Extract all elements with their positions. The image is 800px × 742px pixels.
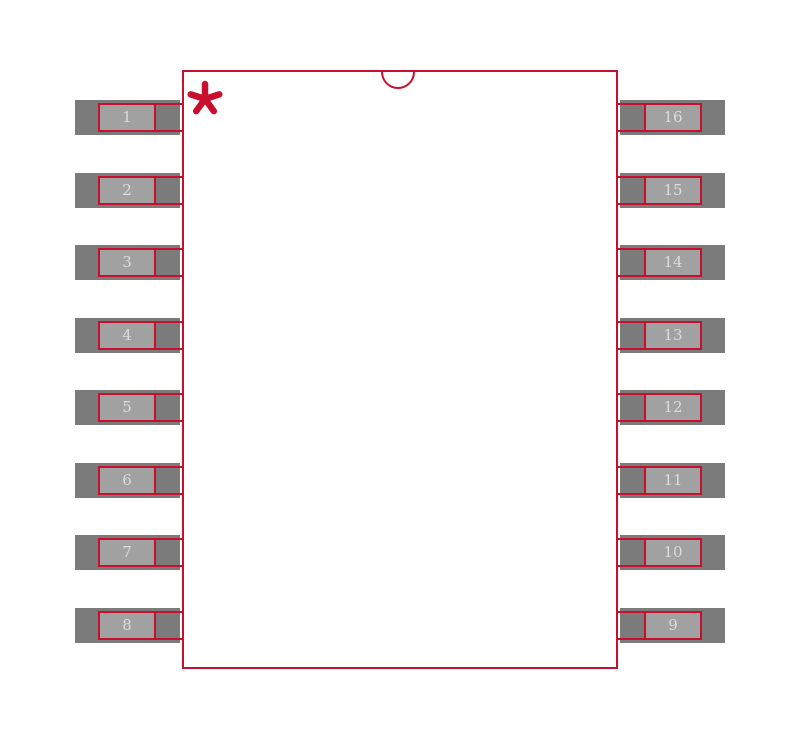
pad-8: 8	[75, 608, 180, 643]
pad-15: 15	[620, 173, 725, 208]
pad-number: 16	[663, 110, 682, 125]
pad-16: 16	[620, 100, 725, 135]
pin-lead-outline	[156, 466, 182, 495]
footprint-canvas: 1 2 3 4 5 6 7	[0, 0, 800, 742]
pin-lead-outline	[618, 248, 644, 277]
pad-13: 13	[620, 318, 725, 353]
pin-foot-outline: 5	[98, 393, 156, 422]
pad-number: 6	[122, 473, 132, 488]
pin-foot-outline: 9	[644, 611, 702, 640]
pad-number: 5	[122, 400, 132, 415]
pad-6: 6	[75, 463, 180, 498]
pin-lead-outline	[156, 611, 182, 640]
pad-12: 12	[620, 390, 725, 425]
pad-5: 5	[75, 390, 180, 425]
pin-lead-outline	[618, 103, 644, 132]
pin-lead-outline	[618, 538, 644, 567]
pin-lead-outline	[156, 248, 182, 277]
pin-lead-outline	[618, 176, 644, 205]
pad-number: 3	[122, 255, 132, 270]
pad-number: 13	[663, 328, 682, 343]
pin-foot-outline: 11	[644, 466, 702, 495]
pad-number: 8	[122, 618, 132, 633]
pad-number: 12	[663, 400, 682, 415]
pad-number: 2	[122, 183, 132, 198]
package-body-outline	[182, 70, 618, 669]
pad-11: 11	[620, 463, 725, 498]
pin-foot-outline: 14	[644, 248, 702, 277]
pad-4: 4	[75, 318, 180, 353]
pin-lead-outline	[156, 103, 182, 132]
pad-number: 1	[122, 110, 132, 125]
pad-number: 14	[663, 255, 682, 270]
pin-foot-outline: 13	[644, 321, 702, 350]
pad-3: 3	[75, 245, 180, 280]
pad-number: 11	[663, 473, 682, 488]
pin-lead-outline	[618, 466, 644, 495]
pad-14: 14	[620, 245, 725, 280]
pin-foot-outline: 7	[98, 538, 156, 567]
orientation-notch-icon	[381, 72, 415, 89]
pin-foot-outline: 4	[98, 321, 156, 350]
pad-9: 9	[620, 608, 725, 643]
pin-lead-outline	[156, 393, 182, 422]
pin-foot-outline: 10	[644, 538, 702, 567]
pin-foot-outline: 2	[98, 176, 156, 205]
pin-foot-outline: 3	[98, 248, 156, 277]
pad-number: 7	[122, 545, 132, 560]
pad-10: 10	[620, 535, 725, 570]
pin-foot-outline: 6	[98, 466, 156, 495]
pad-number: 15	[663, 183, 682, 198]
pin-foot-outline: 1	[98, 103, 156, 132]
pin-lead-outline	[156, 321, 182, 350]
pin-foot-outline: 12	[644, 393, 702, 422]
pad-number: 4	[122, 328, 132, 343]
pin-lead-outline	[618, 611, 644, 640]
pin-foot-outline: 15	[644, 176, 702, 205]
pad-2: 2	[75, 173, 180, 208]
pin1-asterisk-icon	[186, 79, 224, 117]
pad-1: 1	[75, 100, 180, 135]
pin-lead-outline	[156, 176, 182, 205]
pad-number: 9	[668, 618, 678, 633]
pin-foot-outline: 8	[98, 611, 156, 640]
pad-7: 7	[75, 535, 180, 570]
pad-number: 10	[663, 545, 682, 560]
pin-lead-outline	[156, 538, 182, 567]
pin-lead-outline	[618, 393, 644, 422]
pin-foot-outline: 16	[644, 103, 702, 132]
pin-lead-outline	[618, 321, 644, 350]
